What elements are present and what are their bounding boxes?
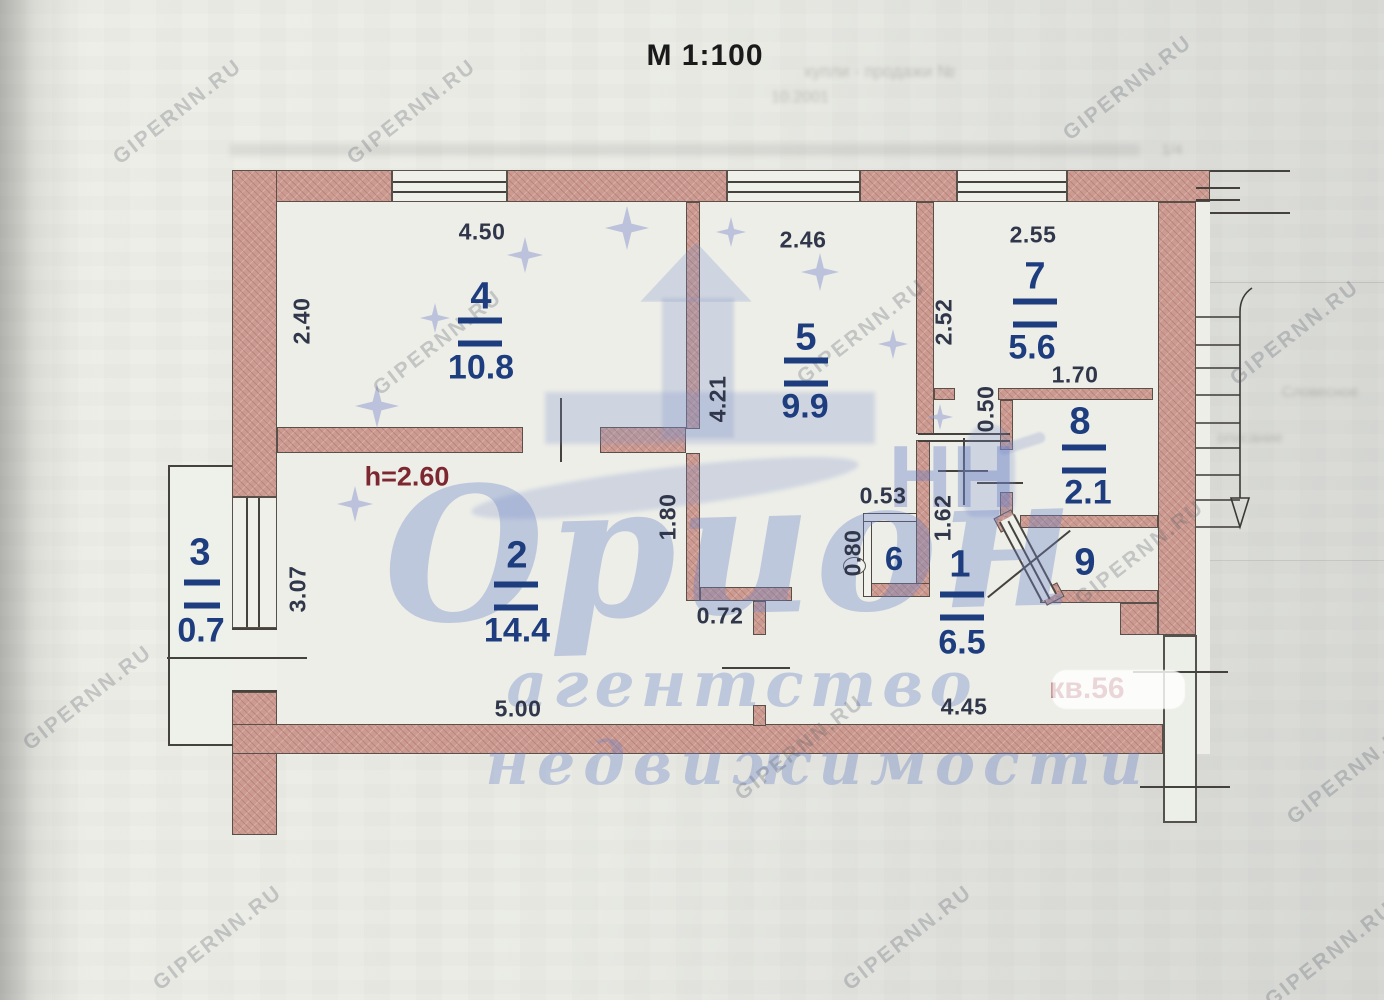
door-edge-line — [232, 628, 277, 630]
watermark-site: GIPERNN.RU — [149, 880, 287, 995]
whiteout-blob — [1052, 670, 1185, 709]
ghost-text-line: 10.2001 — [771, 89, 829, 107]
wall-extension-line — [1196, 199, 1240, 201]
dim-label: 2.40 — [289, 298, 316, 345]
room-eq-mark — [940, 592, 984, 621]
tick-line — [938, 470, 988, 472]
floor-plan-scan: купли - продажи № 10.2001 1/4 Словесное … — [0, 0, 1384, 1000]
window-pane-line — [728, 181, 859, 183]
room-number: 5 — [795, 317, 816, 360]
dim-label: 1.80 — [655, 494, 682, 541]
room-number: 8 — [1069, 401, 1090, 444]
window-pane-line — [958, 191, 1066, 193]
dim-label: 4.45 — [941, 694, 988, 721]
ghost-text-line: купли - продажи № — [805, 62, 956, 82]
wall-top-segment — [507, 170, 727, 202]
window-pane-line — [728, 191, 859, 193]
door-edge-line — [232, 690, 277, 692]
wall-room2-room5 — [686, 453, 700, 601]
room-area: 0.7 — [177, 612, 224, 651]
wall-room5-bottom — [700, 587, 792, 601]
room-area: 10.8 — [448, 349, 514, 388]
room-area: 2.1 — [1064, 474, 1111, 513]
wall-bottom — [232, 724, 1163, 754]
watermark-site: GIPERNN.RU — [109, 54, 247, 169]
dim-label: 2.52 — [931, 299, 958, 346]
room-area: 14.4 — [484, 612, 550, 651]
wall-room6-bottom — [863, 583, 930, 597]
wall-top-segment — [860, 170, 957, 202]
room-eq-mark — [784, 358, 828, 387]
wall-room2-room1 — [753, 601, 766, 635]
threshold-line — [918, 433, 1010, 435]
wall-room4-room5 — [686, 202, 700, 429]
room-number: 3 — [189, 532, 210, 575]
dim-label: 0.50 — [973, 386, 1000, 433]
balcony-outline — [168, 744, 233, 746]
scale-title: М 1:100 — [646, 39, 763, 73]
tick-line — [1140, 786, 1230, 788]
room-eq-mark — [494, 582, 538, 611]
wall-extension-line — [1210, 170, 1290, 172]
wall-top-segment — [1067, 170, 1210, 202]
dim-label: 1.62 — [930, 495, 957, 542]
balcony-door-opening — [232, 628, 277, 692]
wall-left-lower — [232, 692, 277, 835]
wall-right — [1158, 202, 1196, 635]
tick-line — [977, 482, 1023, 484]
wall-room8-left — [1000, 400, 1013, 450]
room-number: 1 — [949, 544, 970, 587]
wall-extension-line — [1210, 212, 1290, 214]
room-number: 6 — [885, 540, 903, 578]
room-number: 7 — [1024, 256, 1045, 299]
room-eq-mark — [184, 580, 220, 609]
wall-room7-bottom — [998, 388, 1153, 400]
ghost-rule — [1190, 560, 1384, 561]
dim-label: 4.50 — [459, 219, 506, 246]
wall-corridor-left — [916, 440, 930, 597]
wall-room7-bottom — [934, 388, 955, 400]
window-pane-line — [393, 191, 506, 193]
room-number: 2 — [506, 535, 527, 578]
wall-room9-corner — [1120, 603, 1158, 635]
watermark-site: GIPERNN.RU — [1261, 897, 1384, 1000]
dim-label: 4.21 — [705, 376, 732, 423]
window-symbol — [392, 170, 507, 202]
window-pane-line — [246, 498, 248, 627]
dim-label: 2.55 — [1010, 222, 1057, 249]
dim-label: 3.07 — [285, 566, 312, 613]
window-pane-line — [958, 181, 1066, 183]
ceiling-height-label: h=2.60 — [365, 462, 450, 493]
room-area: 5.6 — [1008, 329, 1055, 368]
room-eq-mark — [458, 318, 502, 347]
dim-label: 2.46 — [780, 227, 827, 254]
staircase-icon — [1196, 282, 1296, 542]
wall-room8-room9 — [1020, 515, 1158, 528]
room-area: 6.5 — [938, 624, 985, 663]
watermark-site: GIPERNN.RU — [1283, 714, 1384, 829]
wall-room4-room2 — [277, 427, 523, 453]
window-pane-line — [393, 181, 506, 183]
dim-label: 0.72 — [697, 603, 744, 630]
tick-line — [560, 398, 562, 462]
balcony-outline — [168, 465, 170, 746]
tick-line — [167, 657, 307, 659]
tick-line — [722, 667, 790, 669]
window-symbol — [727, 170, 860, 202]
wall-room4-room2 — [600, 427, 686, 453]
watermark-site: GIPERNN.RU — [19, 640, 157, 755]
wall-outline-continuation — [1163, 635, 1197, 823]
threshold-line — [918, 440, 1010, 442]
watermark-site: GIPERNN.RU — [1059, 30, 1197, 145]
window-pane-line — [258, 498, 260, 627]
room-eq-mark — [1013, 299, 1057, 328]
dim-label: 0.80 — [840, 530, 867, 577]
dim-label: 0.53 — [860, 483, 907, 510]
wall-extension-line — [1196, 187, 1240, 189]
wall-left-upper — [232, 170, 277, 497]
dim-label: 5.00 — [495, 696, 542, 723]
partition-room6-top — [863, 513, 917, 522]
ghost-band — [230, 144, 1140, 156]
watermark-site: GIPERNN.RU — [839, 880, 977, 995]
dim-label: 1.70 — [1052, 362, 1099, 389]
room-eq-mark — [1062, 445, 1106, 474]
ghost-text-line: 1/4 — [1162, 142, 1183, 159]
window-symbol — [957, 170, 1067, 202]
room-number: 9 — [1074, 542, 1095, 585]
balcony-outline — [168, 465, 233, 467]
room-number: 4 — [470, 276, 491, 319]
wall-room2-room1 — [753, 705, 766, 726]
room-area: 9.9 — [781, 388, 828, 427]
balcony-window-symbol — [232, 497, 277, 628]
